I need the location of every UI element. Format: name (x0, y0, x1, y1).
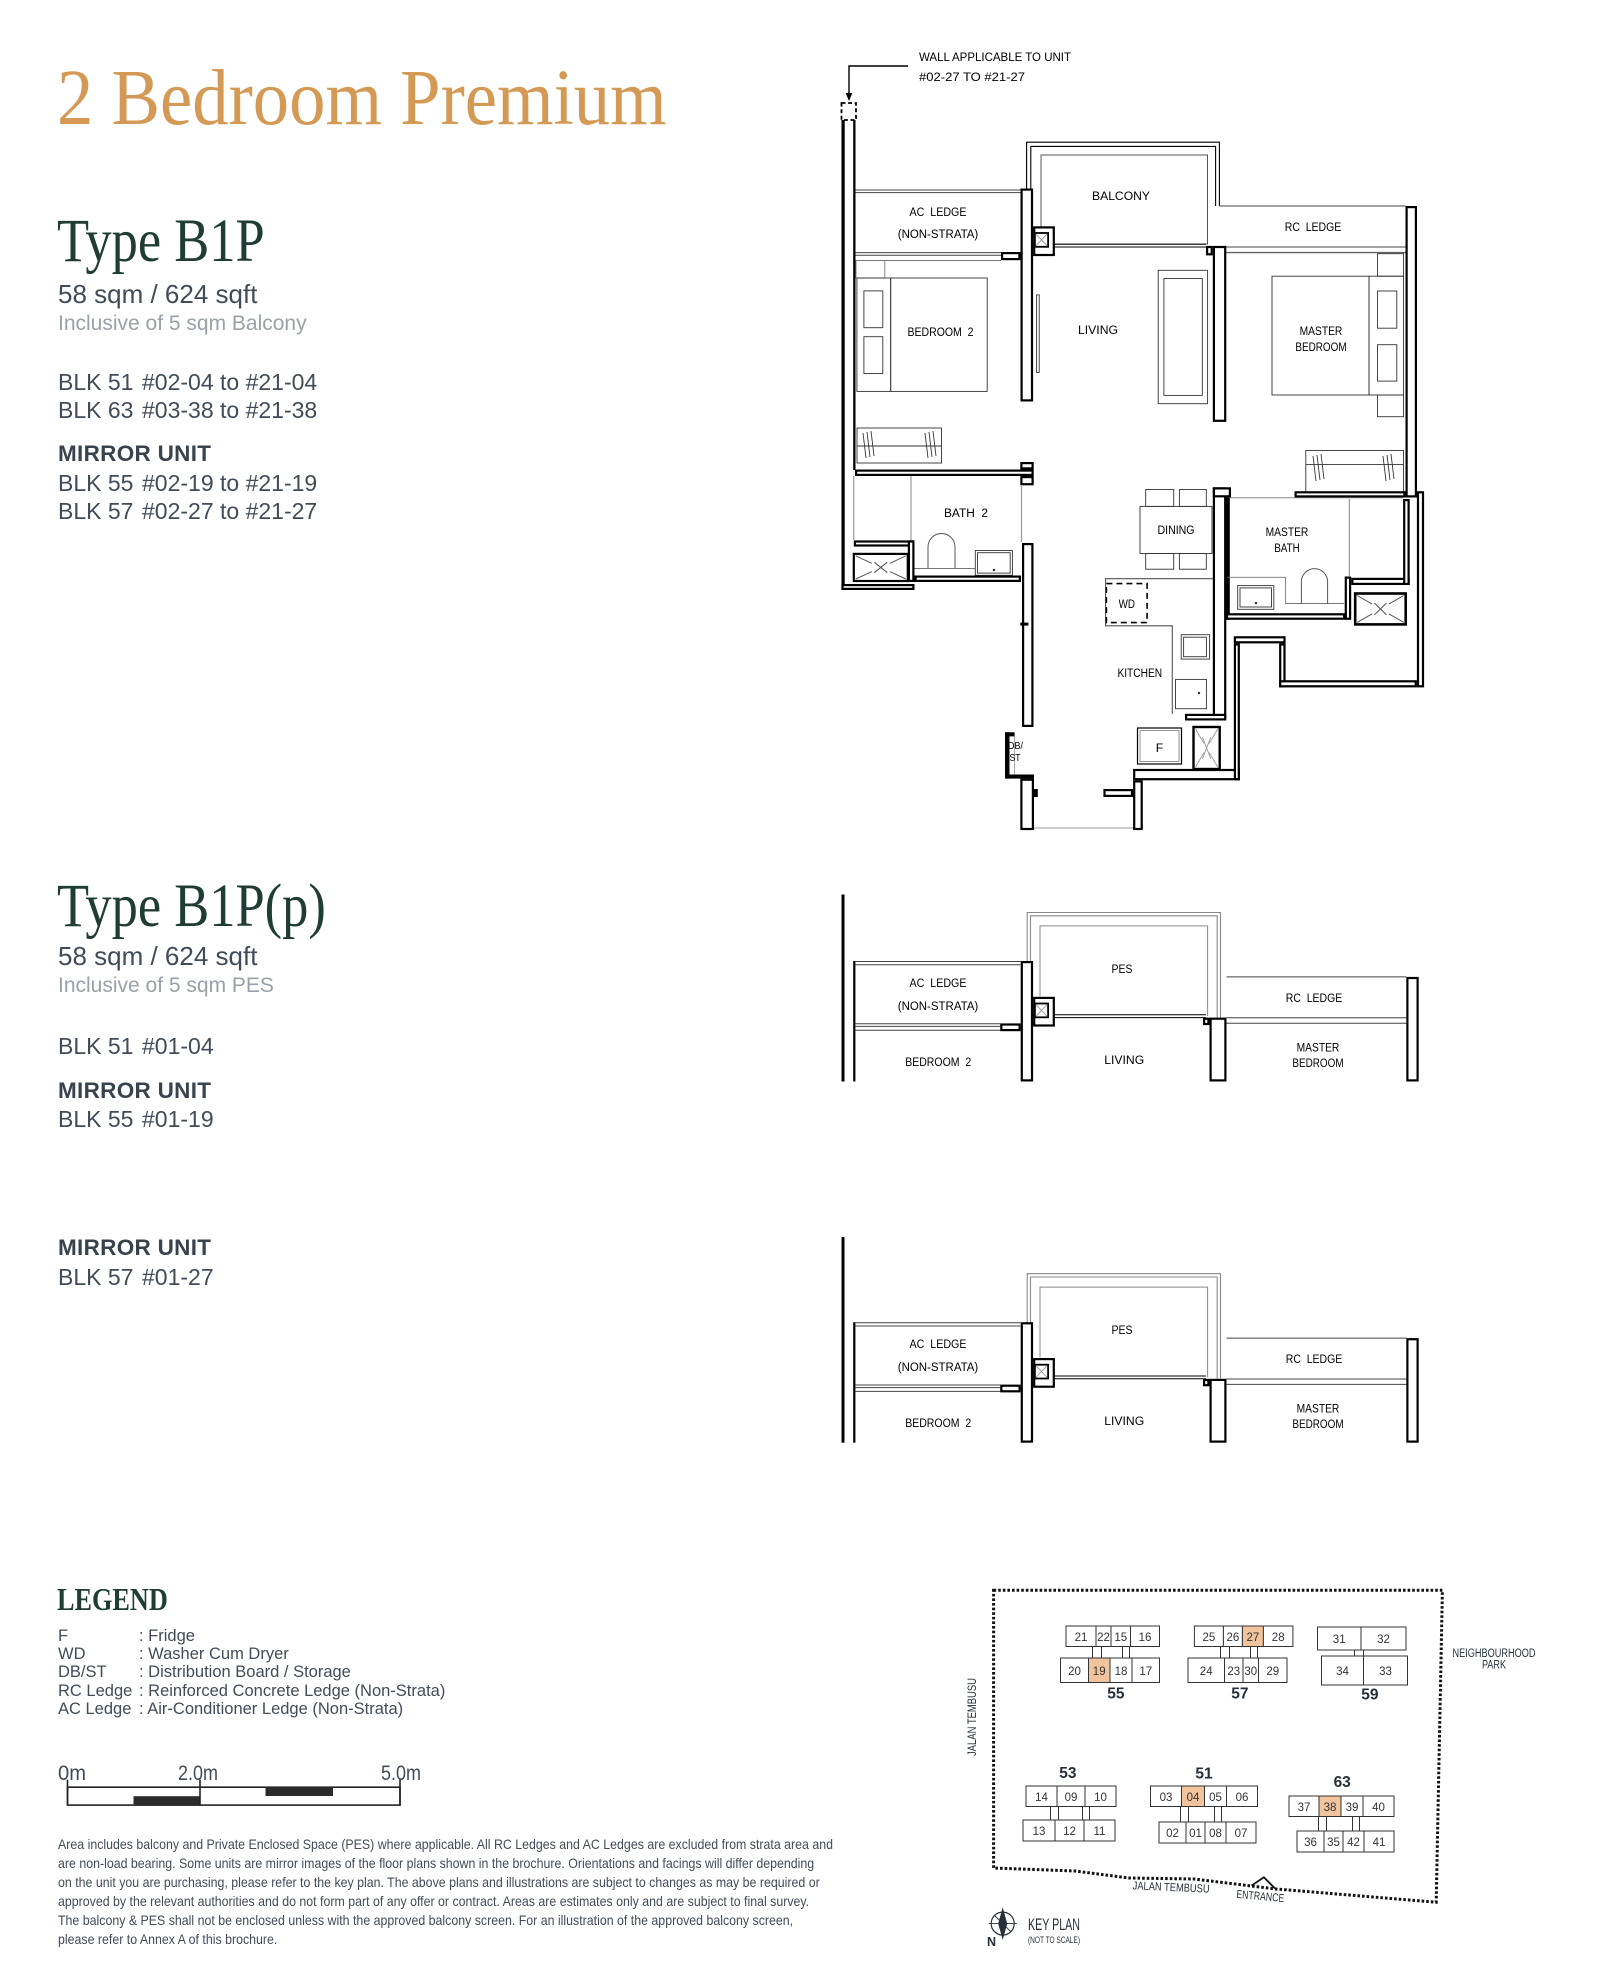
svg-text:N: N (987, 1935, 996, 1949)
svg-text:NEIGHBOURHOOD: NEIGHBOURHOOD (1453, 1648, 1536, 1660)
svg-text:30: 30 (1244, 1666, 1257, 1678)
svg-text:#02-27 TO #21-27: #02-27 TO #21-27 (919, 70, 1025, 84)
svg-text:LIVING: LIVING (1078, 323, 1118, 337)
svg-text:36: 36 (1304, 1837, 1317, 1849)
svg-text:PES: PES (1112, 1323, 1133, 1337)
svg-text:22: 22 (1097, 1632, 1110, 1644)
svg-text:15: 15 (1114, 1632, 1127, 1644)
svg-text:33: 33 (1379, 1666, 1392, 1678)
svg-text:MASTER: MASTER (1300, 324, 1343, 338)
svg-text:BEDROOM: BEDROOM (1292, 1417, 1343, 1431)
svg-text:PES: PES (1112, 962, 1133, 976)
svg-text:01: 01 (1189, 1828, 1202, 1840)
svg-text:29: 29 (1266, 1666, 1279, 1678)
svg-text:KEY PLAN: KEY PLAN (1028, 1915, 1080, 1934)
svg-text:32: 32 (1377, 1634, 1390, 1646)
svg-text:5.0m: 5.0m (381, 1761, 421, 1785)
svg-text:AC LEDGE: AC LEDGE (910, 976, 967, 990)
svg-text:16: 16 (1139, 1632, 1152, 1644)
svg-text:LIVING: LIVING (1104, 1053, 1144, 1067)
svg-text:(NON-STRATA): (NON-STRATA) (898, 999, 979, 1013)
svg-text:AC LEDGE: AC LEDGE (910, 1337, 967, 1351)
svg-text:ENTRANCE: ENTRANCE (1236, 1889, 1285, 1905)
svg-text:JALAN TEMBUSU: JALAN TEMBUSU (1132, 1880, 1209, 1895)
svg-text:24: 24 (1200, 1666, 1213, 1678)
svg-text:(NON-STRATA): (NON-STRATA) (898, 1360, 979, 1374)
svg-text:18: 18 (1115, 1666, 1128, 1678)
svg-text:28: 28 (1272, 1632, 1285, 1644)
svg-text:WALL APPLICABLE TO UNIT: WALL APPLICABLE TO UNIT (919, 50, 1072, 64)
svg-text:14: 14 (1035, 1792, 1048, 1804)
svg-text:13: 13 (1033, 1826, 1046, 1838)
svg-text:57: 57 (1231, 1686, 1248, 1703)
svg-text:42: 42 (1347, 1837, 1360, 1849)
svg-text:0m: 0m (58, 1761, 86, 1785)
svg-text:06: 06 (1236, 1792, 1249, 1804)
svg-text:(NOT TO SCALE): (NOT TO SCALE) (1028, 1935, 1080, 1946)
svg-text:35: 35 (1327, 1837, 1340, 1849)
svg-text:F: F (1156, 741, 1163, 755)
svg-text:25: 25 (1203, 1632, 1216, 1644)
svg-text:37: 37 (1298, 1802, 1311, 1814)
svg-text:RC LEDGE: RC LEDGE (1285, 220, 1342, 234)
svg-text:MASTER: MASTER (1297, 1040, 1340, 1054)
svg-text:BATH 2: BATH 2 (944, 506, 988, 520)
svg-text:34: 34 (1336, 1666, 1349, 1678)
svg-text:23: 23 (1227, 1666, 1240, 1678)
svg-text:MASTER: MASTER (1297, 1402, 1340, 1416)
svg-text:KITCHEN: KITCHEN (1117, 666, 1162, 680)
svg-text:RC LEDGE: RC LEDGE (1286, 991, 1343, 1005)
svg-text:BEDROOM: BEDROOM (1292, 1056, 1343, 1070)
svg-text:BEDROOM 2: BEDROOM 2 (905, 1416, 971, 1430)
svg-text:04: 04 (1187, 1792, 1200, 1804)
svg-text:BEDROOM 2: BEDROOM 2 (908, 325, 974, 339)
svg-text:DINING: DINING (1158, 523, 1195, 537)
svg-text:38: 38 (1324, 1802, 1337, 1814)
svg-text:40: 40 (1372, 1802, 1385, 1814)
svg-text:2.0m: 2.0m (178, 1761, 218, 1785)
svg-text:31: 31 (1333, 1634, 1346, 1646)
svg-text:(NON-STRATA): (NON-STRATA) (898, 227, 979, 241)
svg-text:53: 53 (1059, 1765, 1077, 1782)
svg-text:55: 55 (1107, 1686, 1125, 1703)
svg-text:02: 02 (1166, 1828, 1179, 1840)
svg-text:51: 51 (1195, 1766, 1213, 1783)
svg-text:08: 08 (1209, 1828, 1222, 1840)
svg-text:DB/: DB/ (1008, 740, 1023, 752)
svg-text:RC LEDGE: RC LEDGE (1286, 1352, 1343, 1366)
svg-text:JALAN TEMBUSU: JALAN TEMBUSU (967, 1678, 979, 1756)
svg-text:WD: WD (1119, 597, 1135, 611)
svg-text:05: 05 (1209, 1792, 1222, 1804)
svg-text:41: 41 (1373, 1837, 1386, 1849)
svg-text:BALCONY: BALCONY (1092, 189, 1150, 203)
svg-text:LIVING: LIVING (1104, 1414, 1144, 1428)
svg-text:BATH: BATH (1274, 541, 1300, 555)
svg-text:19: 19 (1093, 1666, 1106, 1678)
svg-text:03: 03 (1160, 1792, 1173, 1804)
svg-text:39: 39 (1346, 1802, 1359, 1814)
svg-text:12: 12 (1063, 1826, 1076, 1838)
svg-text:MASTER: MASTER (1266, 525, 1309, 539)
svg-text:AC LEDGE: AC LEDGE (910, 205, 967, 219)
svg-text:09: 09 (1065, 1792, 1078, 1804)
svg-text:BEDROOM: BEDROOM (1295, 340, 1346, 354)
svg-text:21: 21 (1075, 1632, 1088, 1644)
svg-text:11: 11 (1094, 1826, 1106, 1838)
svg-text:07: 07 (1235, 1828, 1248, 1840)
svg-text:63: 63 (1334, 1774, 1352, 1791)
svg-text:BEDROOM 2: BEDROOM 2 (905, 1055, 971, 1069)
svg-text:PARK: PARK (1482, 1660, 1506, 1672)
svg-text:27: 27 (1247, 1632, 1260, 1644)
svg-text:17: 17 (1139, 1666, 1152, 1678)
svg-text:26: 26 (1227, 1632, 1240, 1644)
svg-text:ST: ST (1010, 752, 1021, 764)
svg-text:59: 59 (1361, 1687, 1379, 1704)
svg-text:10: 10 (1094, 1792, 1107, 1804)
svg-text:20: 20 (1068, 1666, 1081, 1678)
